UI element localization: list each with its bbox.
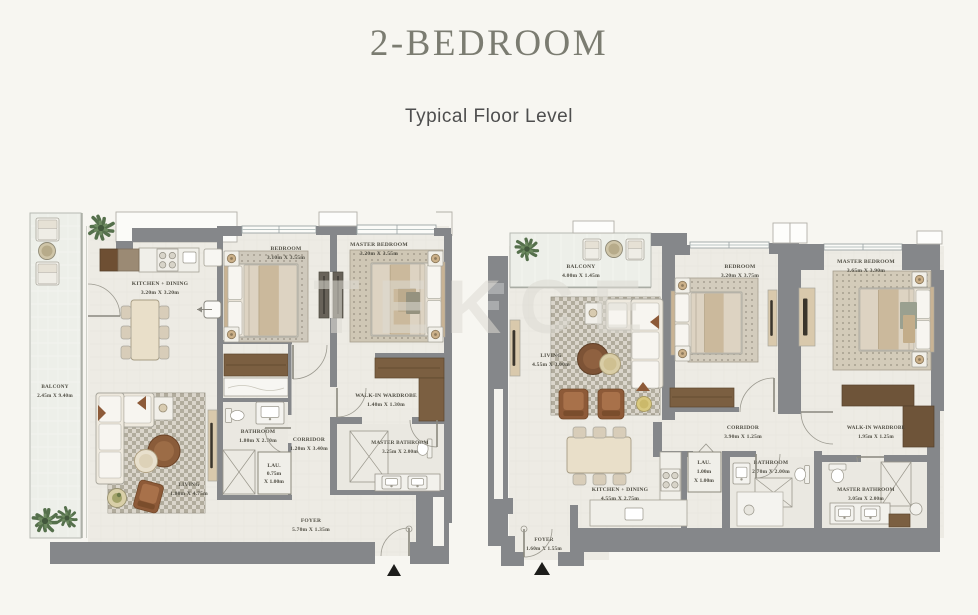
svg-text:LAU.: LAU.	[267, 463, 281, 469]
svg-text:BATHROOM: BATHROOM	[241, 429, 276, 435]
svg-text:3.25m X 2.00m: 3.25m X 2.00m	[382, 449, 418, 455]
svg-text:1.20m X 3.40m: 1.20m X 3.40m	[290, 446, 328, 452]
svg-text:2.45m X 9.40m: 2.45m X 9.40m	[37, 393, 73, 399]
svg-text:1.95m X 1.25m: 1.95m X 1.25m	[858, 434, 894, 440]
svg-text:3.65m X 3.90m: 3.65m X 3.90m	[847, 268, 885, 274]
svg-text:X 1.00m: X 1.00m	[264, 479, 284, 485]
svg-text:0.75m: 0.75m	[267, 471, 282, 477]
svg-text:1.60m X 1.55m: 1.60m X 1.55m	[526, 546, 562, 552]
svg-text:MASTER BEDROOM: MASTER BEDROOM	[837, 259, 895, 265]
svg-text:3.20m X 3.20m: 3.20m X 3.20m	[141, 290, 179, 296]
svg-text:1.80m X 4.75m: 1.80m X 4.75m	[170, 491, 208, 497]
svg-text:3.05m X 2.00m: 3.05m X 2.00m	[848, 496, 884, 502]
svg-text:X 1.00m: X 1.00m	[694, 478, 714, 484]
svg-text:WALK-IN WARDROBE: WALK-IN WARDROBE	[847, 425, 906, 431]
svg-text:2.70m X 2.00m: 2.70m X 2.00m	[752, 469, 790, 475]
svg-text:1.00m: 1.00m	[697, 469, 712, 475]
svg-text:CORRIDOR: CORRIDOR	[293, 437, 326, 443]
svg-text:CORRIDOR: CORRIDOR	[727, 425, 760, 431]
svg-text:LIVING: LIVING	[178, 482, 200, 488]
svg-text:3.10m X 3.55m: 3.10m X 3.55m	[267, 255, 305, 261]
svg-text:5.70m X 1.35m: 5.70m X 1.35m	[292, 527, 330, 533]
svg-text:1.40m X 1.30m: 1.40m X 1.30m	[367, 402, 405, 408]
svg-text:TEKCE: TEKCE	[313, 265, 661, 350]
svg-text:1.80m X 2.70m: 1.80m X 2.70m	[239, 438, 277, 444]
svg-text:FOYER: FOYER	[301, 518, 322, 524]
svg-text:4.55m X 2.75m: 4.55m X 2.75m	[601, 496, 639, 502]
svg-text:3.20m X 3.55m: 3.20m X 3.55m	[360, 251, 398, 257]
svg-text:4.55m X 3.00m: 4.55m X 3.00m	[532, 362, 570, 368]
svg-text:LIVING: LIVING	[540, 353, 562, 359]
svg-text:MASTER BEDROOM: MASTER BEDROOM	[350, 242, 408, 248]
svg-text:KITCHEN + DINING: KITCHEN + DINING	[132, 281, 189, 287]
svg-text:BATHROOM: BATHROOM	[754, 460, 789, 466]
svg-text:KITCHEN + DINING: KITCHEN + DINING	[592, 487, 649, 493]
svg-text:3.20m X 3.75m: 3.20m X 3.75m	[721, 273, 759, 279]
svg-text:LAU.: LAU.	[697, 460, 711, 466]
svg-text:MASTER BATHROOM: MASTER BATHROOM	[837, 487, 895, 493]
svg-text:BEDROOM: BEDROOM	[725, 264, 756, 270]
svg-text:3.90m X 1.25m: 3.90m X 1.25m	[724, 434, 762, 440]
svg-text:BEDROOM: BEDROOM	[271, 246, 302, 252]
svg-text:BALCONY: BALCONY	[41, 384, 68, 390]
